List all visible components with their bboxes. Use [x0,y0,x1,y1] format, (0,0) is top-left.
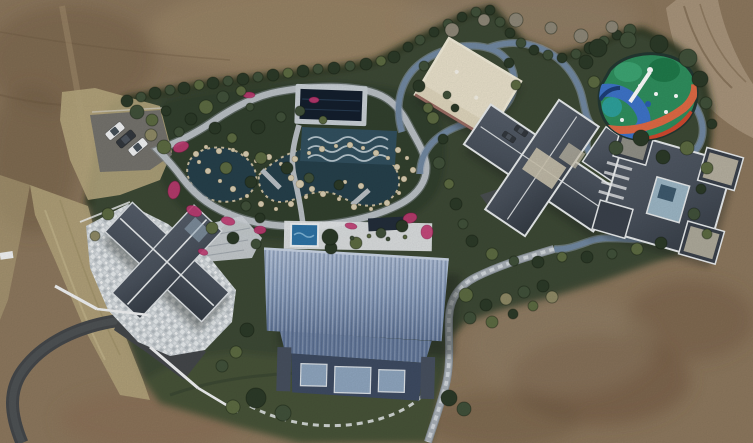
aerial-photo [0,0,753,443]
photo-grain [0,0,753,443]
aerial-photo-screenshot [0,0,753,443]
